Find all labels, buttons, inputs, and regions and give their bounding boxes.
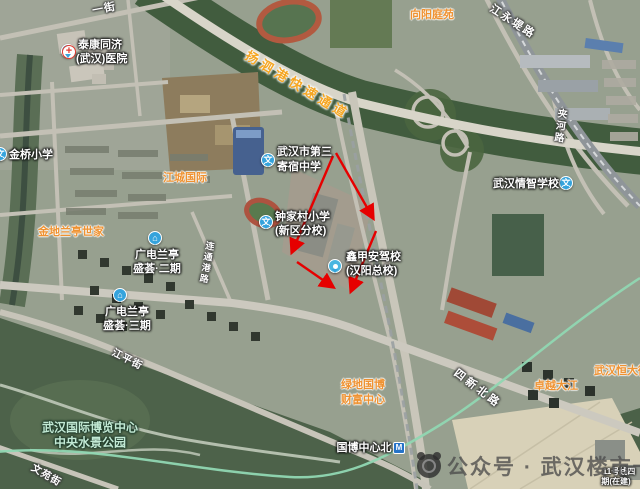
school-icon-qingzhi[interactable]: 文 <box>559 176 573 190</box>
school-icon-no3-boarding[interactable]: 文 <box>261 153 275 167</box>
hospital-cross-glyph: + <box>62 45 76 59</box>
map-canvas[interactable] <box>0 0 640 489</box>
school-icon-zhongjiacun[interactable]: 文 <box>259 215 273 229</box>
building-icon-guangdian2[interactable]: ⌂ <box>148 231 162 245</box>
hospital-icon[interactable]: + <box>61 44 75 58</box>
driving-school-icon[interactable] <box>328 259 342 273</box>
satellite-map[interactable]: + 文 文 文 ⌂ ⌂ 文 M 泰康同济 (武汉)医院 金桥小学 向阳庭苑 武汉… <box>0 0 640 489</box>
metro-icon[interactable]: M <box>393 442 405 454</box>
building-icon-guangdian3[interactable]: ⌂ <box>113 288 127 302</box>
